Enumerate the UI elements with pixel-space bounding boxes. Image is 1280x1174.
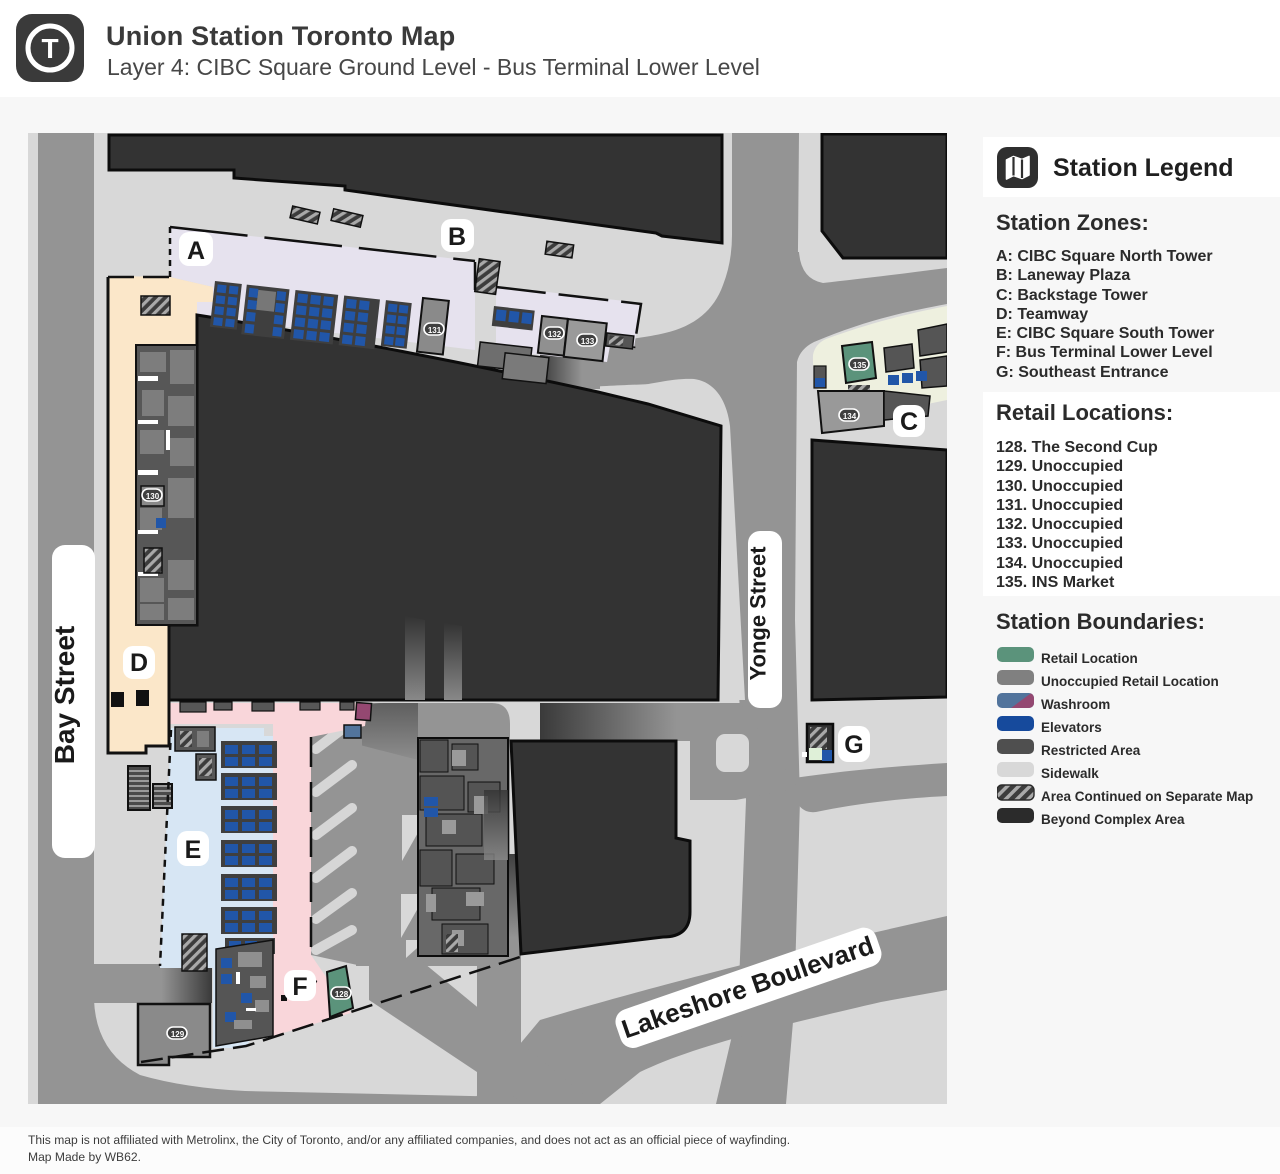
svg-text:Bay Street: Bay Street — [49, 626, 80, 765]
svg-text:129: 129 — [171, 1030, 185, 1039]
svg-text:B: B — [448, 223, 466, 251]
svg-text:Yonge Street: Yonge Street — [746, 546, 771, 681]
svg-text:132: 132 — [548, 330, 562, 339]
svg-text:130: 130 — [146, 492, 160, 501]
svg-text:E: E — [185, 836, 202, 864]
svg-text:C: C — [900, 408, 918, 436]
svg-text:G: G — [844, 731, 863, 759]
svg-text:D: D — [130, 649, 148, 677]
svg-text:128: 128 — [335, 990, 349, 999]
svg-text:131: 131 — [428, 326, 442, 335]
svg-text:133: 133 — [581, 337, 595, 346]
svg-text:A: A — [187, 237, 205, 265]
svg-text:T: T — [41, 33, 58, 64]
svg-text:F: F — [292, 973, 307, 1001]
svg-text:134: 134 — [843, 412, 857, 421]
svg-text:135: 135 — [853, 361, 867, 370]
